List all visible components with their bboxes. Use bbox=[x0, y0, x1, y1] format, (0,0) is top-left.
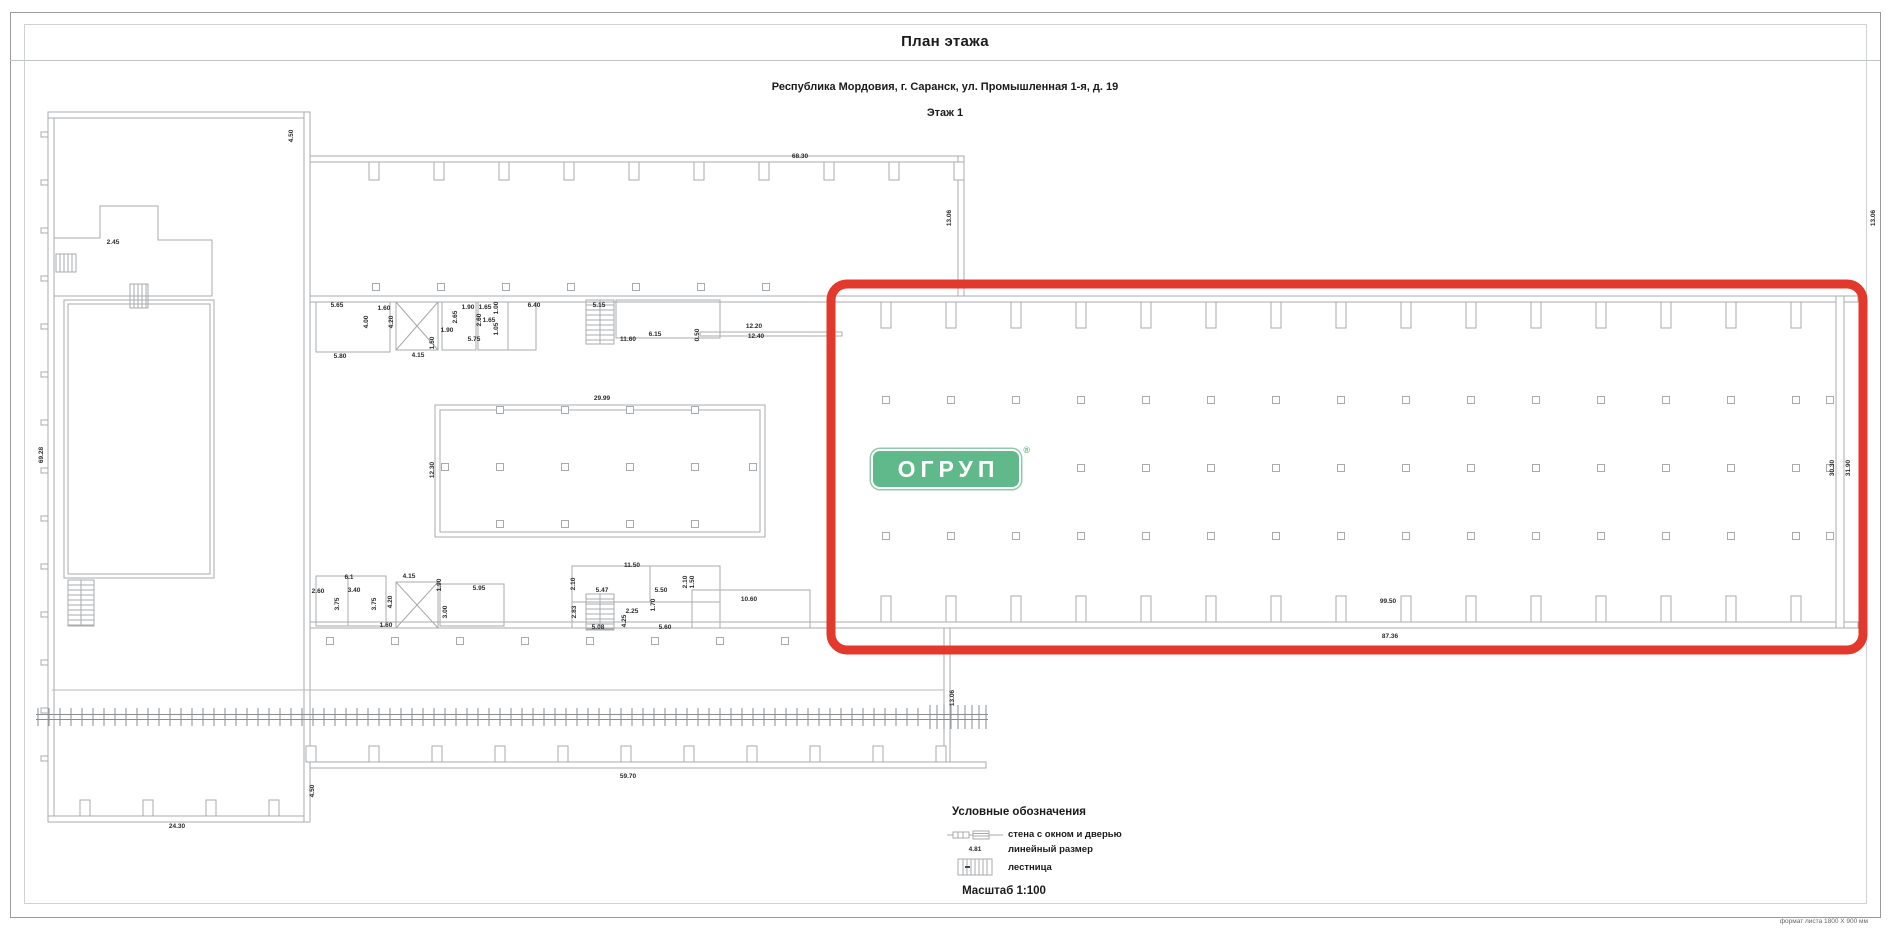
wall-pilasters bbox=[80, 162, 1801, 816]
ogrup-logo: ОГРУП ® bbox=[871, 449, 1021, 489]
legend-title: Условные обозначения bbox=[944, 806, 1264, 818]
sheet-format-note: формат листа 1800 Х 900 мм bbox=[1780, 918, 1868, 925]
ogrup-logo-text: ОГРУП bbox=[893, 456, 1000, 483]
legend: Условные обозначения стена с окном и две… bbox=[944, 806, 1264, 897]
window-marks bbox=[41, 132, 48, 761]
drawing-sheet: План этажа Республика Мордовия, г. Саран… bbox=[0, 0, 1890, 932]
legend-label: лестница bbox=[1006, 862, 1052, 873]
scale-label: Масштаб 1:100 bbox=[944, 885, 1064, 897]
interior-partitions bbox=[52, 206, 944, 690]
linear-dimension-icon: 4.81 bbox=[944, 846, 1006, 853]
wall-window-door-icon bbox=[944, 829, 1006, 841]
columns bbox=[327, 284, 1834, 645]
railway-track bbox=[36, 705, 988, 729]
registered-trademark-icon: ® bbox=[1023, 445, 1030, 455]
stairs-icon bbox=[944, 858, 1006, 876]
legend-label: линейный размер bbox=[1006, 844, 1093, 855]
legend-item-stairs: лестница bbox=[944, 857, 1264, 877]
legend-label: стена с окном и дверью bbox=[1006, 829, 1122, 840]
legend-item-wall: стена с окном и дверью bbox=[944, 827, 1264, 842]
legend-item-dimension: 4.81 линейный размер bbox=[944, 842, 1264, 857]
